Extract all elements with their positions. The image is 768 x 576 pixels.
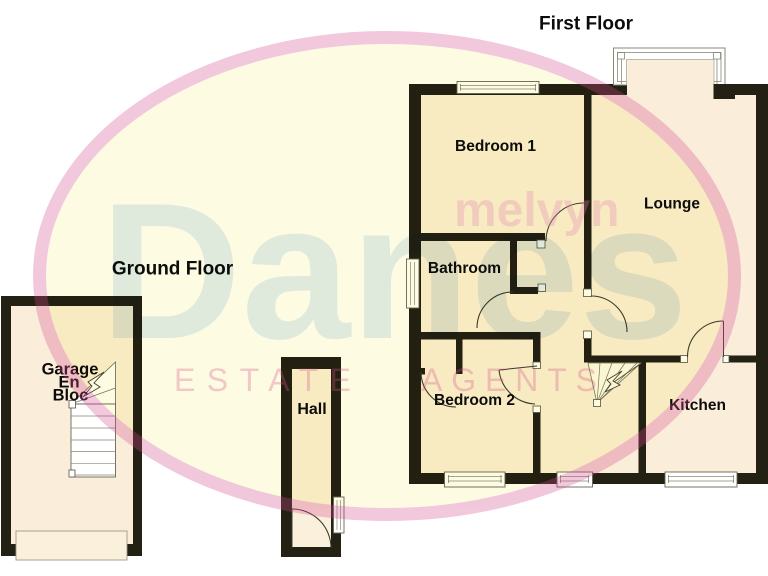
svg-text:melvyn: melvyn bbox=[454, 184, 619, 237]
svg-text:First Floor: First Floor bbox=[539, 14, 634, 35]
